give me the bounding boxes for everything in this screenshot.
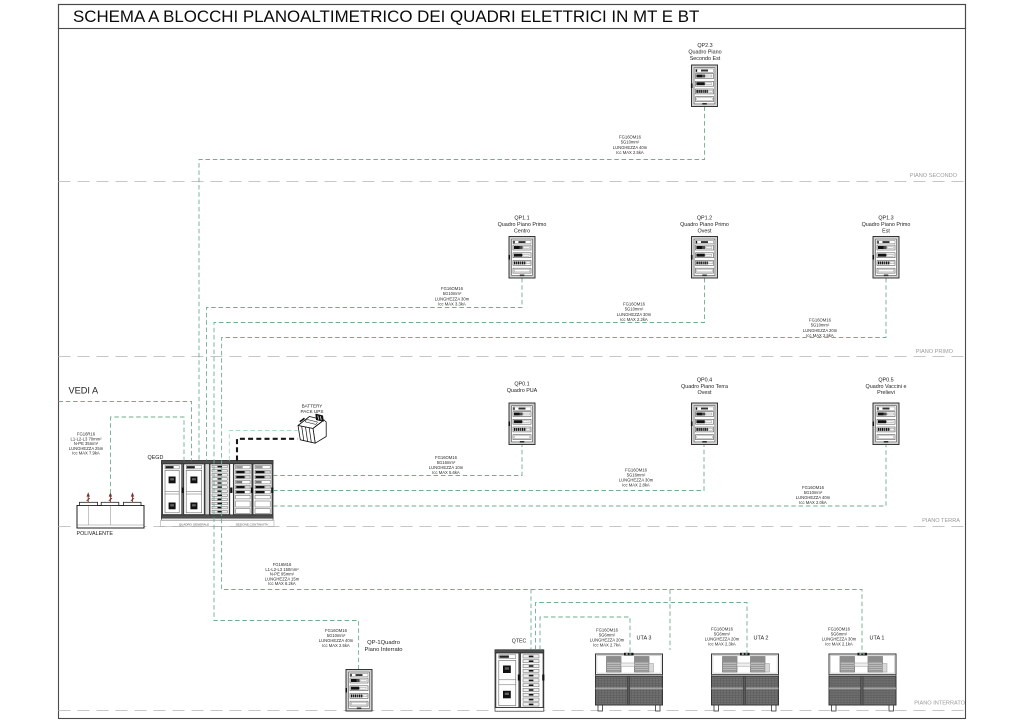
svg-text:Icc MAX 2.5kA: Icc MAX 2.5kA (806, 333, 834, 338)
svg-text:PIANO PRIMO: PIANO PRIMO (916, 349, 954, 355)
svg-text:QP0.1: QP0.1 (514, 382, 529, 388)
svg-text:Icc MAX 2.8kA: Icc MAX 2.8kA (622, 483, 650, 488)
svg-text:QP2.3: QP2.3 (697, 43, 712, 49)
svg-text:Icc MAX 2.5kA: Icc MAX 2.5kA (616, 150, 644, 155)
svg-text:Quadro Piano Primo: Quadro Piano Primo (498, 222, 547, 228)
svg-text:BATTERY: BATTERY (302, 404, 323, 409)
svg-text:PIANO INTERRATO: PIANO INTERRATO (914, 701, 965, 707)
svg-text:UTA 1: UTA 1 (870, 636, 885, 642)
svg-text:Piano Interrato: Piano Interrato (364, 647, 402, 653)
svg-text:Icc MAX 6.2kA: Icc MAX 6.2kA (268, 581, 296, 586)
svg-text:Quadro Piano Primo: Quadro Piano Primo (680, 222, 729, 228)
svg-text:QP1.1: QP1.1 (514, 216, 529, 222)
svg-text:VEDI A: VEDI A (69, 386, 99, 396)
svg-text:PIANO SECONDO: PIANO SECONDO (910, 173, 958, 179)
svg-text:Secondo Est: Secondo Est (690, 56, 721, 62)
svg-text:Icc MAX 2.7kA: Icc MAX 2.7kA (593, 643, 621, 648)
svg-text:SCHEMA A BLOCCHI PLANOALTIMETR: SCHEMA A BLOCCHI PLANOALTIMETRICO DEI QU… (73, 7, 699, 26)
svg-text:Ovest: Ovest (697, 390, 712, 396)
svg-text:Ovest: Ovest (697, 229, 712, 235)
svg-text:QP0.5: QP0.5 (878, 378, 893, 384)
svg-text:Icc MAX 2.2kA: Icc MAX 2.2kA (620, 317, 648, 322)
svg-text:UTA 3: UTA 3 (637, 636, 652, 642)
svg-text:PACK UPS: PACK UPS (301, 409, 324, 414)
svg-text:QEGD: QEGD (148, 455, 164, 461)
svg-text:QP1.3: QP1.3 (878, 216, 893, 222)
svg-text:Icc MAX 7.9kA: Icc MAX 7.9kA (72, 451, 100, 456)
svg-text:PIANO TERRA: PIANO TERRA (922, 518, 960, 524)
svg-text:QTEC: QTEC (512, 639, 527, 645)
svg-text:Icc MAX 2.5kA: Icc MAX 2.5kA (322, 643, 350, 648)
svg-text:Icc MAX 2.1kA: Icc MAX 2.1kA (825, 642, 853, 647)
svg-text:QP-1Quadro: QP-1Quadro (367, 640, 400, 646)
svg-text:Quadro PUA: Quadro PUA (507, 388, 538, 394)
svg-text:QUADRO GENERALE: QUADRO GENERALE (179, 522, 209, 526)
svg-text:Quadro Piano Primo: Quadro Piano Primo (862, 222, 911, 228)
svg-text:POLIVALENTE: POLIVALENTE (77, 531, 114, 537)
svg-text:QP0.4: QP0.4 (697, 378, 712, 384)
svg-text:Centro: Centro (514, 229, 530, 235)
svg-text:UTA 2: UTA 2 (754, 636, 769, 642)
svg-text:QP1.2: QP1.2 (697, 216, 712, 222)
svg-text:Icc MAX 5.6kA: Icc MAX 5.6kA (432, 470, 460, 475)
svg-text:SEZIONE CONTINUITA': SEZIONE CONTINUITA' (236, 522, 269, 526)
svg-text:Est: Est (882, 229, 890, 235)
svg-text:Icc MAX 2.0kA: Icc MAX 2.0kA (799, 500, 827, 505)
svg-text:Icc MAX 3.3kA: Icc MAX 3.3kA (438, 302, 466, 307)
svg-text:Quadro Piano: Quadro Piano (688, 49, 721, 55)
svg-text:Prelievi: Prelievi (877, 390, 895, 396)
svg-text:Icc MAX 2.3kA: Icc MAX 2.3kA (708, 642, 736, 647)
